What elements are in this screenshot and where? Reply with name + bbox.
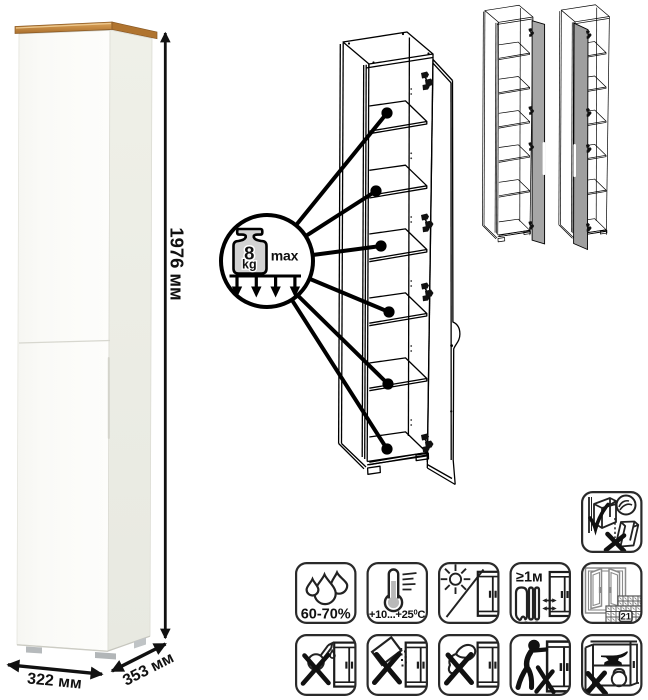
svg-text:≥1м: ≥1м	[516, 570, 543, 586]
svg-text:kg: kg	[242, 257, 257, 271]
svg-text:322 мм: 322 мм	[26, 670, 82, 692]
svg-text:60-70%: 60-70%	[301, 607, 351, 623]
svg-text:1976 мм: 1976 мм	[167, 227, 188, 300]
svg-text:21: 21	[621, 612, 632, 623]
svg-text:+10...+250C: +10...+250C	[369, 607, 425, 621]
svg-text:max: max	[271, 248, 299, 264]
svg-text:353 мм: 353 мм	[120, 649, 177, 689]
